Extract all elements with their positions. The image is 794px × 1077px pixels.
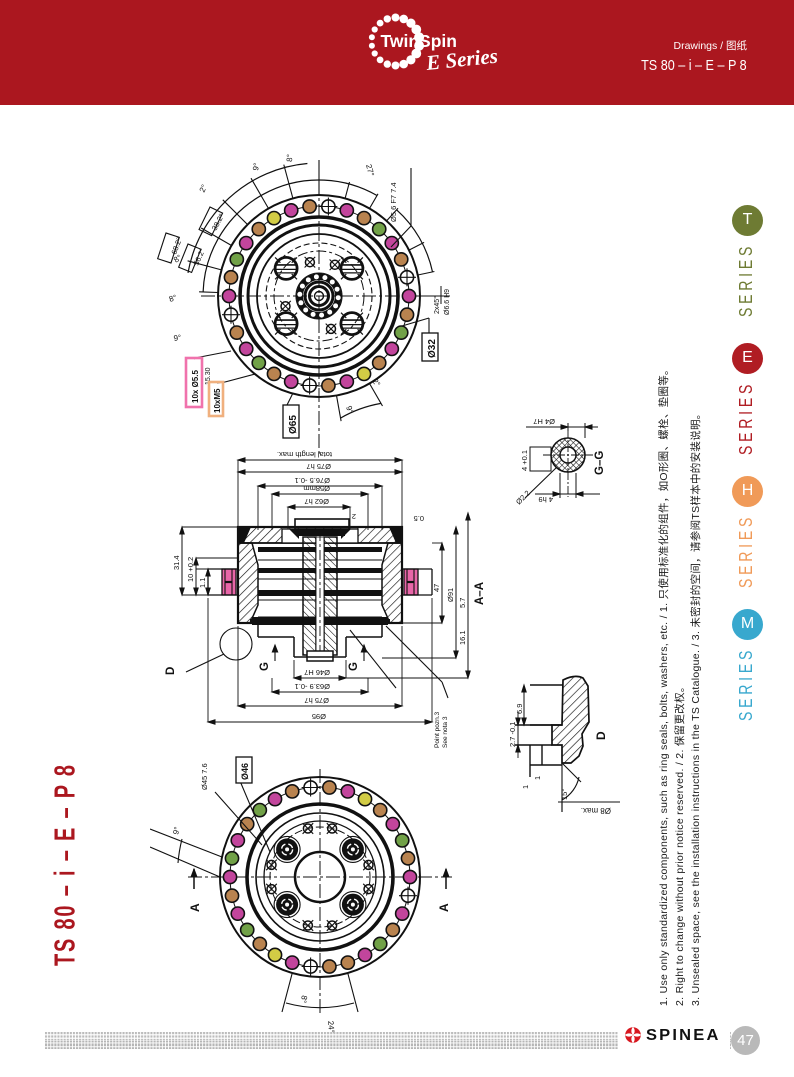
svg-text:Ø76.5 -0.1: Ø76.5 -0.1	[295, 476, 330, 485]
svg-text:2°: 2°	[370, 377, 382, 388]
svg-text:A: A	[188, 903, 202, 912]
svg-text:Ø2.2: Ø2.2	[514, 489, 532, 507]
svg-text:8°: 8°	[285, 154, 294, 162]
svg-text:Ø62 h7: Ø62 h7	[304, 497, 329, 506]
svg-text:Ø95: Ø95	[312, 712, 326, 721]
svg-text:47: 47	[432, 584, 441, 592]
svg-text:4 h9: 4 h9	[538, 495, 553, 504]
svg-text:9°: 9°	[344, 405, 355, 415]
svg-text:Ø75 h7: Ø75 h7	[306, 462, 331, 471]
svg-text:1.1: 1.1	[198, 578, 207, 588]
svg-text:D: D	[594, 731, 608, 740]
svg-text:15°: 15°	[560, 789, 569, 800]
svg-text:9°: 9°	[251, 162, 261, 171]
svg-text:Ø58mm: Ø58mm	[303, 484, 330, 493]
svg-text:G–G: G–G	[594, 451, 606, 475]
svg-text:9°: 9°	[171, 826, 182, 836]
svg-text:Ø6.6 H9: Ø6.6 H9	[444, 289, 451, 315]
svg-text:2: 2	[352, 512, 356, 521]
svg-text:68.2°: 68.2°	[169, 236, 183, 256]
svg-text:9°: 9°	[173, 333, 182, 343]
svg-text:5.7: 5.7	[458, 598, 467, 608]
svg-text:Ø32: Ø32	[427, 339, 438, 358]
svg-text:8°: 8°	[168, 293, 178, 304]
svg-text:total length max.: total length max.	[277, 450, 332, 459]
svg-text:0.5: 0.5	[414, 514, 424, 523]
svg-text:4 +0.1: 4 +0.1	[520, 450, 529, 471]
svg-text:10 +0.2: 10 +0.2	[186, 557, 195, 582]
svg-text:10x Ø5.5: 10x Ø5.5	[191, 370, 200, 403]
svg-text:Ø75 h7: Ø75 h7	[304, 696, 329, 705]
svg-text:27°: 27°	[364, 163, 376, 177]
svg-text:G: G	[348, 662, 360, 671]
svg-text:Ø5.6 F7 7.4: Ø5.6 F7 7.4	[389, 182, 398, 222]
svg-text:31.4: 31.4	[172, 555, 181, 570]
svg-text:G: G	[259, 662, 271, 671]
svg-text:2°: 2°	[198, 183, 209, 194]
svg-text:16.1: 16.1	[458, 630, 467, 645]
svg-text:Ø4 H7: Ø4 H7	[533, 417, 555, 426]
svg-text:2x45°: 2x45°	[433, 296, 441, 314]
svg-text:8°: 8°	[299, 995, 309, 1004]
svg-text:D: D	[165, 667, 177, 675]
svg-text:10xM5: 10xM5	[213, 388, 222, 413]
svg-text:Ø91: Ø91	[446, 588, 455, 602]
svg-text:24°: 24°	[326, 1020, 336, 1033]
svg-text:SPINEA: SPINEA	[646, 1027, 721, 1045]
svg-text:A–A: A–A	[474, 582, 486, 605]
svg-text:Ø46 H7: Ø46 H7	[304, 668, 330, 677]
svg-text:A: A	[437, 903, 451, 912]
svg-text:6.9: 6.9	[515, 704, 524, 714]
svg-text:Ø46: Ø46	[240, 763, 250, 780]
svg-text:Ø45 7.6: Ø45 7.6	[200, 763, 209, 790]
svg-text:Ø8 max.: Ø8 max.	[581, 806, 611, 815]
svg-text:Ø63.9 -0.1: Ø63.9 -0.1	[295, 682, 330, 691]
